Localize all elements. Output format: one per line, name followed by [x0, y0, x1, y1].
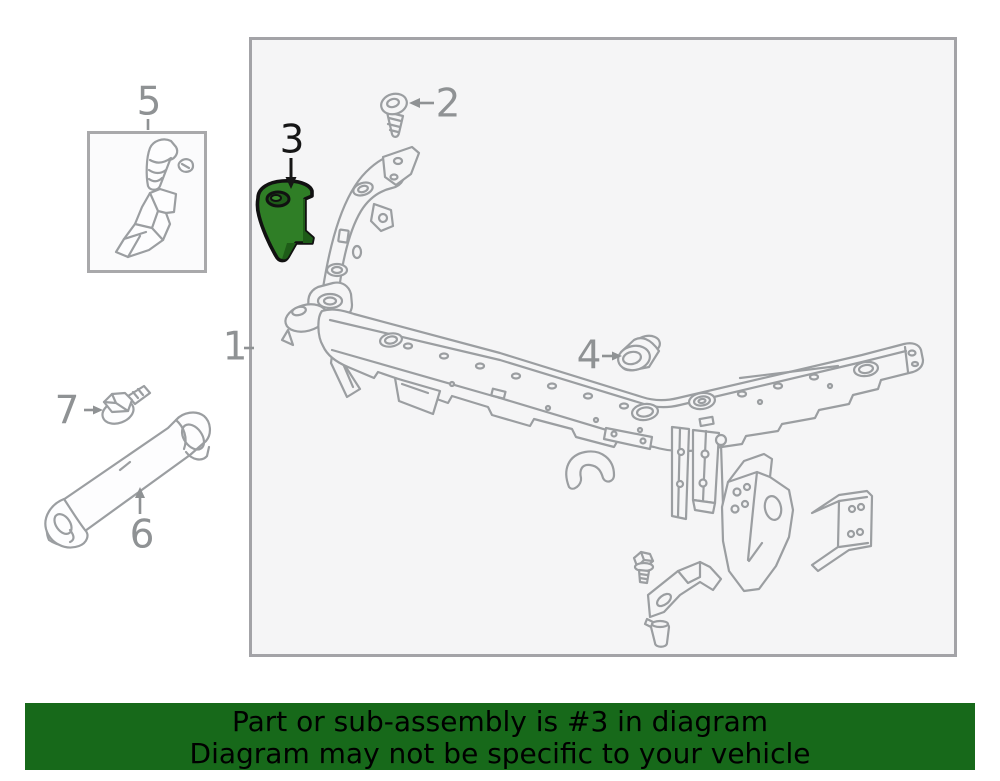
part5-bracket-set-drawing — [116, 139, 193, 257]
parts-diagram-page: 1 2 3 4 5 6 7 Part or sub-assembly is #3… — [0, 0, 1000, 781]
angle-brace-drawing — [648, 562, 721, 617]
part2-screw-drawing — [379, 91, 409, 137]
callout-arrow-2 — [409, 98, 434, 108]
callout-label-4: 4 — [577, 337, 602, 376]
banner-line-2: Diagram may not be specific to your vehi… — [25, 738, 975, 770]
small-bolt-drawing — [634, 552, 653, 583]
upright-rail-drawing — [308, 147, 419, 319]
callout-label-3: 3 — [280, 121, 305, 160]
support-straps-drawing — [672, 427, 726, 519]
crossmember-beam-drawing — [318, 310, 923, 451]
banner-line-1: Part or sub-assembly is #3 in diagram — [25, 706, 975, 738]
callout-arrow-7 — [84, 406, 103, 415]
part3-highlighted-bracket — [257, 181, 313, 261]
info-banner: Part or sub-assembly is #3 in diagram Di… — [25, 703, 975, 770]
callout-label-7: 7 — [55, 392, 80, 431]
horseshoe-clip-drawing — [566, 451, 614, 488]
plug-drawing — [645, 619, 669, 647]
callout-label-5: 5 — [137, 83, 162, 122]
part4-grommet-drawing — [616, 333, 662, 373]
gusset-bracket-drawing — [722, 454, 793, 591]
callout-label-1: 1 — [223, 328, 248, 367]
l-bracket-drawing — [812, 491, 872, 571]
callout-label-6: 6 — [130, 516, 155, 555]
part7-bolt-drawing — [99, 386, 150, 428]
callout-label-2: 2 — [436, 85, 461, 124]
